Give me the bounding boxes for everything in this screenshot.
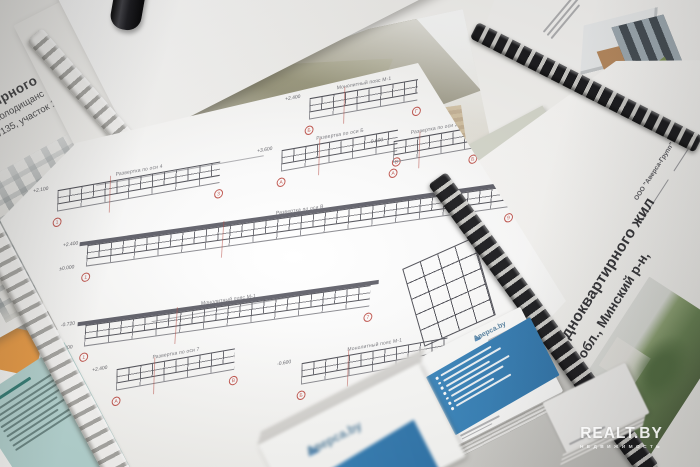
blueprint-drawing: Развертка по оси 7 +2.400 А В bbox=[116, 340, 235, 390]
blueprint-drawing-beam: Монолитный пояс М-1 -0.720 +1.200 1 7 bbox=[84, 277, 371, 346]
card-brand: Аверса.by bbox=[305, 442, 320, 456]
photo-scene: ртирного жи т. Колодищанс 7/135, участок… bbox=[0, 0, 700, 467]
card-brand-name: Аверса.by bbox=[304, 418, 364, 458]
card-brand: Аверса.by bbox=[473, 333, 482, 342]
watermark-logo: REALT.BY НЕДВИЖИМОСТЬ bbox=[580, 425, 663, 450]
watermark-brand: REALT.BY bbox=[580, 425, 663, 443]
blueprint-drawing: Развертка по оси Б +3.600 А В bbox=[281, 122, 398, 172]
watermark-tagline: НЕДВИЖИМОСТЬ bbox=[580, 445, 663, 450]
blueprint-drawing: Развертка по оси 4 +2.100 1 3 bbox=[57, 153, 221, 211]
